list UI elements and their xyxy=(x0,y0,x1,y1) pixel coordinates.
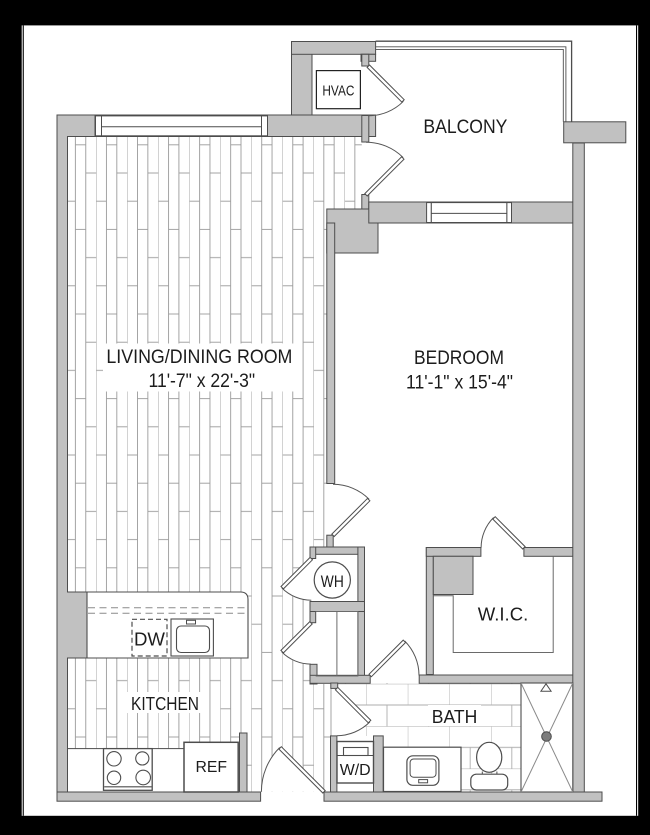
svg-text:LIVING/DINING ROOM: LIVING/DINING ROOM xyxy=(106,346,292,368)
svg-text:W.I.C.: W.I.C. xyxy=(478,605,529,625)
svg-text:WH: WH xyxy=(321,573,344,591)
svg-text:DW: DW xyxy=(134,630,165,650)
svg-text:REF: REF xyxy=(196,759,228,776)
svg-text:HVAC: HVAC xyxy=(322,83,354,99)
svg-text:BATH: BATH xyxy=(432,707,478,727)
svg-text:11'-7" x 22'-3": 11'-7" x 22'-3" xyxy=(149,371,256,392)
svg-text:BALCONY: BALCONY xyxy=(423,117,507,138)
svg-text:11'-1" x 15'-4": 11'-1" x 15'-4" xyxy=(406,373,513,394)
svg-text:KITCHEN: KITCHEN xyxy=(131,693,199,714)
svg-text:W/D: W/D xyxy=(340,762,371,779)
svg-text:BEDROOM: BEDROOM xyxy=(414,347,504,369)
